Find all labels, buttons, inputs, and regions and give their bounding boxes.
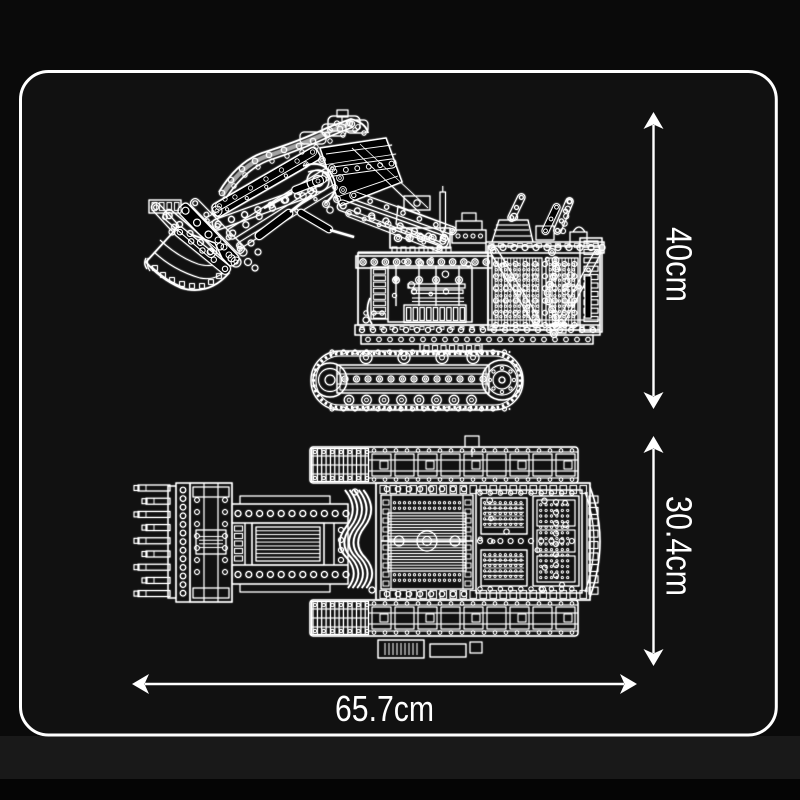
svg-text:30.4cm: 30.4cm (659, 496, 700, 596)
svg-text:65.7cm: 65.7cm (335, 688, 434, 729)
svg-text:40cm: 40cm (659, 227, 700, 302)
